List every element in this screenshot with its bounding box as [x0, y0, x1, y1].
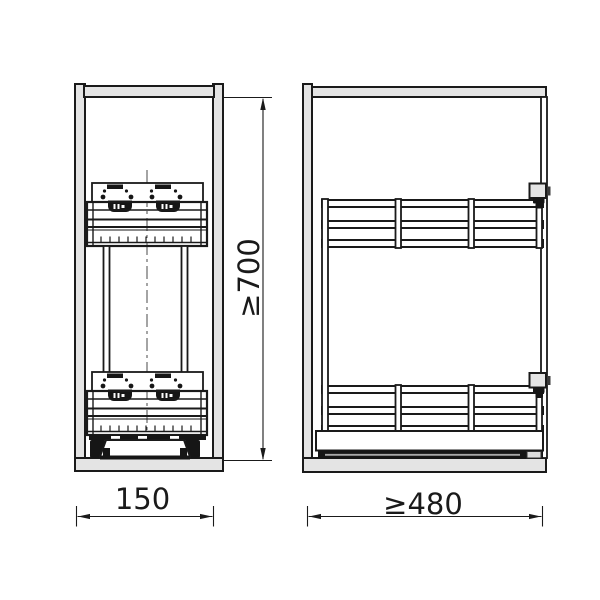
front-right-side-panel — [213, 84, 223, 458]
arrowhead-right — [529, 514, 541, 519]
side-basket-upper — [322, 199, 543, 248]
side-top-panel — [312, 87, 546, 97]
slide-rail-assembly — [318, 451, 543, 460]
side-divider-post — [396, 199, 402, 248]
front-bottom-panel — [75, 458, 223, 471]
hinge-cup — [530, 184, 547, 199]
carriage-base-bar — [100, 456, 190, 460]
side-view — [303, 84, 551, 472]
side-divider-post — [469, 199, 475, 248]
side-rail-top — [322, 200, 543, 207]
technical-drawing-canvas: ≥700 150 ≥480 — [0, 0, 600, 600]
mount-slot — [155, 185, 171, 190]
side-frame-upright — [322, 199, 328, 431]
dimension-depth: ≥480 — [308, 487, 543, 527]
height-dimension-label: ≥700 — [232, 238, 266, 318]
dimension-height: ≥700 — [223, 98, 272, 461]
side-rail-bottom — [322, 240, 543, 247]
cabinet-drawing: ≥700 150 ≥480 — [0, 0, 600, 600]
arrowhead-up — [260, 98, 265, 110]
carriage-body — [100, 440, 190, 457]
slide-end-cap — [527, 452, 541, 459]
side-bottom-panel — [303, 458, 546, 472]
frame-upright-right — [182, 246, 188, 373]
hinge-foot — [536, 204, 544, 209]
arrowhead-down — [260, 448, 265, 460]
front-view — [75, 84, 223, 471]
dimension-width: 150 — [77, 482, 214, 527]
side-basket-lower — [322, 385, 543, 434]
front-top-panel — [84, 86, 214, 97]
side-rail-middle — [322, 221, 543, 228]
frame-upright-left — [104, 246, 110, 373]
front-slide-carriage — [89, 435, 206, 460]
hinge-arm — [533, 198, 545, 204]
pullout-base-platform — [316, 431, 543, 451]
side-back-panel — [303, 84, 312, 458]
depth-dimension-label: ≥480 — [383, 487, 463, 521]
basket-bottom-wires — [101, 237, 191, 243]
arrowhead-right — [200, 514, 212, 519]
front-left-side-panel — [75, 84, 85, 458]
width-dimension-label: 150 — [115, 482, 170, 516]
arrowhead-left — [309, 514, 321, 519]
mount-slot — [107, 185, 123, 190]
arrowhead-left — [78, 514, 90, 519]
